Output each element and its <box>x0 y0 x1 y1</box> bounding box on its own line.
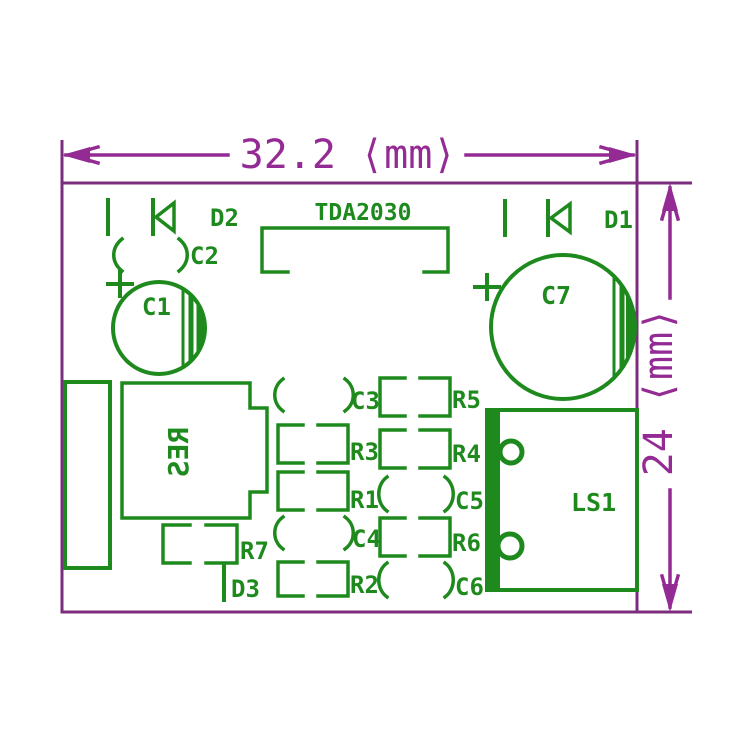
capacitor-c3-symbol <box>275 379 354 411</box>
label-c7: C7 <box>541 281 571 310</box>
capacitor-c4-symbol <box>275 517 354 549</box>
diode-d1-symbol <box>505 201 570 235</box>
resistor-r3-symbol <box>278 425 348 463</box>
pcb-silkscreen-svg: 32.2 ⟨mm⟩ 24 ⟨mm⟩ D2 TDA2030 D1 C2 <box>0 0 750 750</box>
capacitor-c2-symbol <box>114 239 188 271</box>
label-c3: C3 <box>351 387 380 415</box>
label-d2: D2 <box>210 204 239 232</box>
capacitor-c6-symbol <box>379 563 454 597</box>
pcb-drawing: 32.2 ⟨mm⟩ 24 ⟨mm⟩ D2 TDA2030 D1 C2 <box>0 0 750 750</box>
label-r5: R5 <box>452 386 481 414</box>
ic-tda2030-outline <box>262 228 448 272</box>
label-c1: C1 <box>142 293 171 321</box>
label-r3: R3 <box>350 438 379 466</box>
resistor-r2-symbol <box>278 562 348 596</box>
label-d1: D1 <box>604 206 633 234</box>
capacitor-c7-symbol <box>475 253 635 401</box>
diode-d2-symbol <box>108 200 174 234</box>
width-dimension-label: 32.2 ⟨mm⟩ <box>240 132 457 178</box>
label-c5: C5 <box>455 487 484 515</box>
capacitor-c1-symbol <box>108 272 205 376</box>
label-r1: R1 <box>350 486 379 514</box>
width-dimension: 32.2 ⟨mm⟩ <box>62 132 637 178</box>
height-dimension-label: 24 ⟨mm⟩ <box>636 308 682 477</box>
resistor-r4-symbol <box>380 430 450 468</box>
label-r4: R4 <box>452 440 481 468</box>
label-r2: R2 <box>350 571 379 599</box>
label-c2: C2 <box>190 242 219 270</box>
label-c6: C6 <box>455 573 484 601</box>
label-res: RES <box>162 427 195 478</box>
height-dimension: 24 ⟨mm⟩ <box>636 183 682 612</box>
mounting-hole <box>498 534 522 558</box>
resistor-r1-symbol <box>278 472 348 510</box>
resistor-r6-symbol <box>380 518 450 556</box>
capacitor-c5-symbol <box>379 477 454 511</box>
mounting-hole <box>500 441 522 463</box>
label-c4: C4 <box>352 525 381 553</box>
label-r7: R7 <box>240 537 269 565</box>
label-r6: R6 <box>452 529 481 557</box>
edge-connector-outline <box>65 382 110 568</box>
label-tda2030: TDA2030 <box>315 200 412 226</box>
label-d3: D3 <box>231 575 260 603</box>
label-ls1: LS1 <box>571 488 616 517</box>
resistor-r7-symbol <box>163 525 237 563</box>
